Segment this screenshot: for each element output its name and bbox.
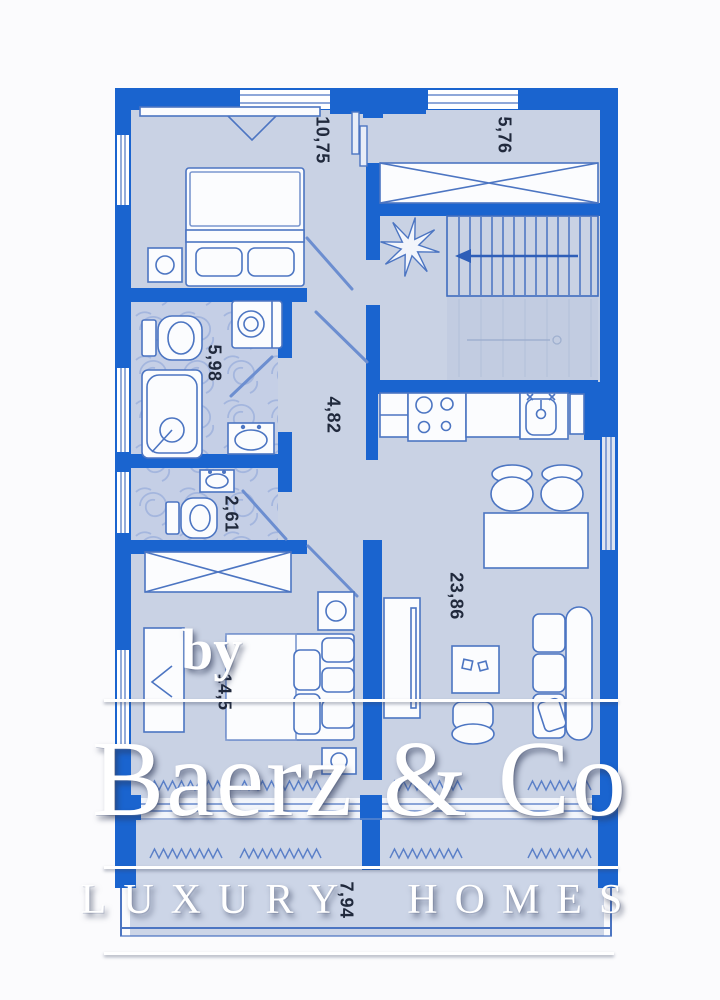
floorplan-page: 10,75 5,76 5,98 4,82 2,61 23,86 14,5 7,9…: [0, 0, 720, 1000]
watermark-divider-middle: [104, 866, 618, 869]
watermark-by: by: [181, 616, 242, 683]
room-labels: 10,75 5,76 5,98 4,82 2,61 23,86 14,5 7,9…: [0, 0, 720, 1000]
room-area-label-storage: 5,76: [494, 116, 515, 153]
watermark-divider-top: [104, 699, 618, 702]
room-area-label-bathroom: 5,98: [204, 344, 225, 381]
watermark-tagline: LUXURY HOMES: [81, 876, 640, 924]
room-area-label-bedroom-top: 10,75: [312, 116, 333, 164]
room-area-label-wc: 2,61: [221, 495, 242, 532]
watermark-divider-bottom: [104, 952, 614, 955]
room-area-label-hallway: 4,82: [323, 396, 344, 433]
room-area-label-living: 23,86: [446, 572, 467, 620]
watermark-brand: Baerz & Co: [92, 718, 628, 842]
